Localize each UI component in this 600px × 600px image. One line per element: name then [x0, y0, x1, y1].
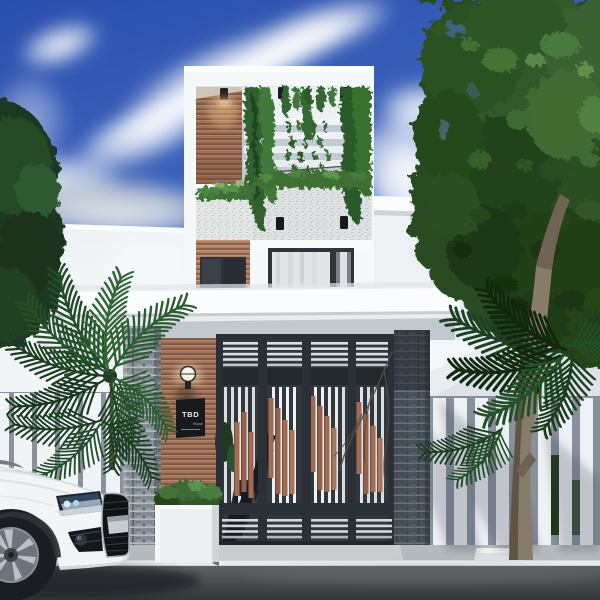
svg-text:House: House	[193, 422, 203, 426]
svg-text:TBD: TBD	[182, 410, 199, 419]
